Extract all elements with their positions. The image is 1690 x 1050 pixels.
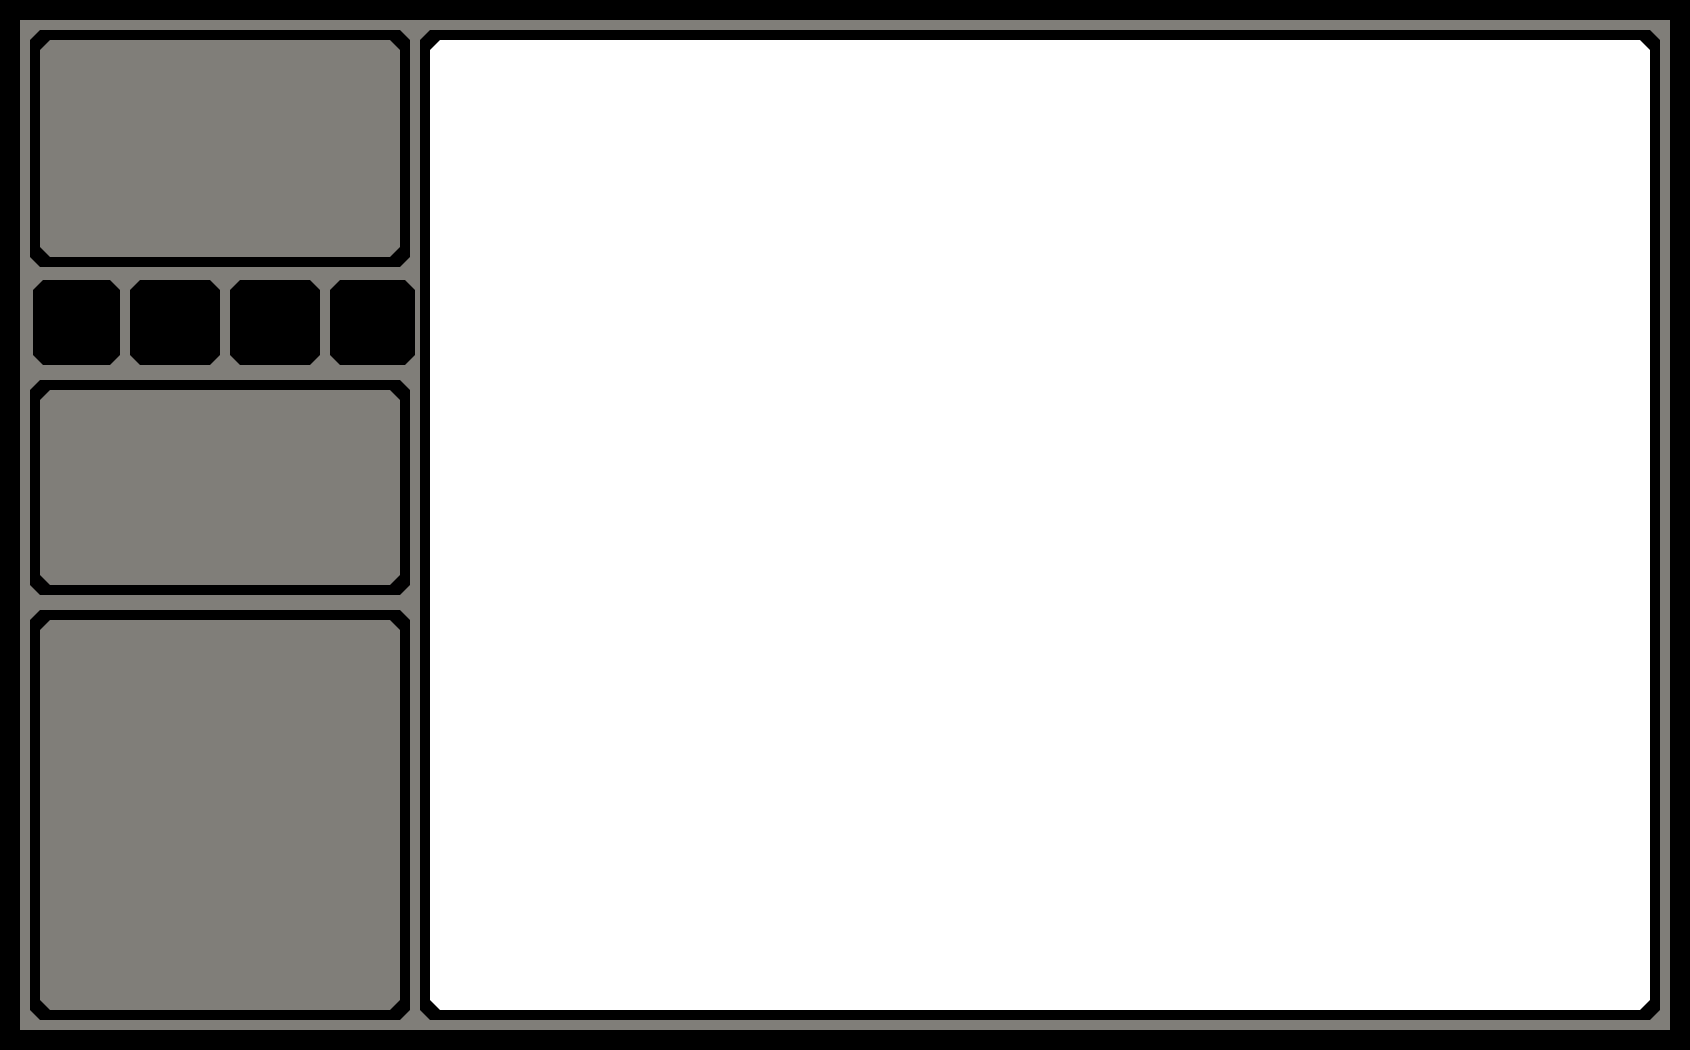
- sidebar-button-2[interactable]: [130, 280, 220, 365]
- window-frame: [20, 20, 1670, 1030]
- sidebar-button-3[interactable]: [230, 280, 320, 365]
- sidebar-panel-bottom-content: [40, 620, 400, 1010]
- sidebar-panel-bottom: [30, 610, 410, 1020]
- main-content-panel: [420, 30, 1660, 1020]
- sidebar-panel-middle: [30, 380, 410, 595]
- sidebar-panel-top-content: [40, 40, 400, 257]
- sidebar-panel-top: [30, 30, 410, 267]
- main-content-area: [430, 40, 1650, 1010]
- sidebar-button-row: [30, 280, 415, 365]
- screen: [0, 0, 1690, 1050]
- sidebar-button-1[interactable]: [33, 280, 120, 365]
- sidebar-panel-middle-content: [40, 390, 400, 585]
- sidebar-button-4[interactable]: [330, 280, 415, 365]
